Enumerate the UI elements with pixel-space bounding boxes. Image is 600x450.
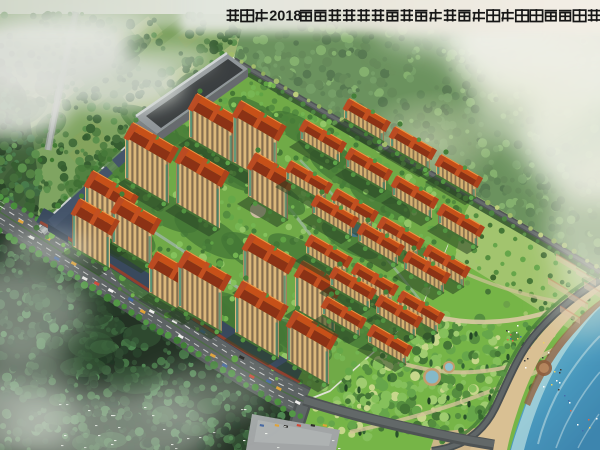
svg-text:2018: 2018	[269, 8, 301, 24]
